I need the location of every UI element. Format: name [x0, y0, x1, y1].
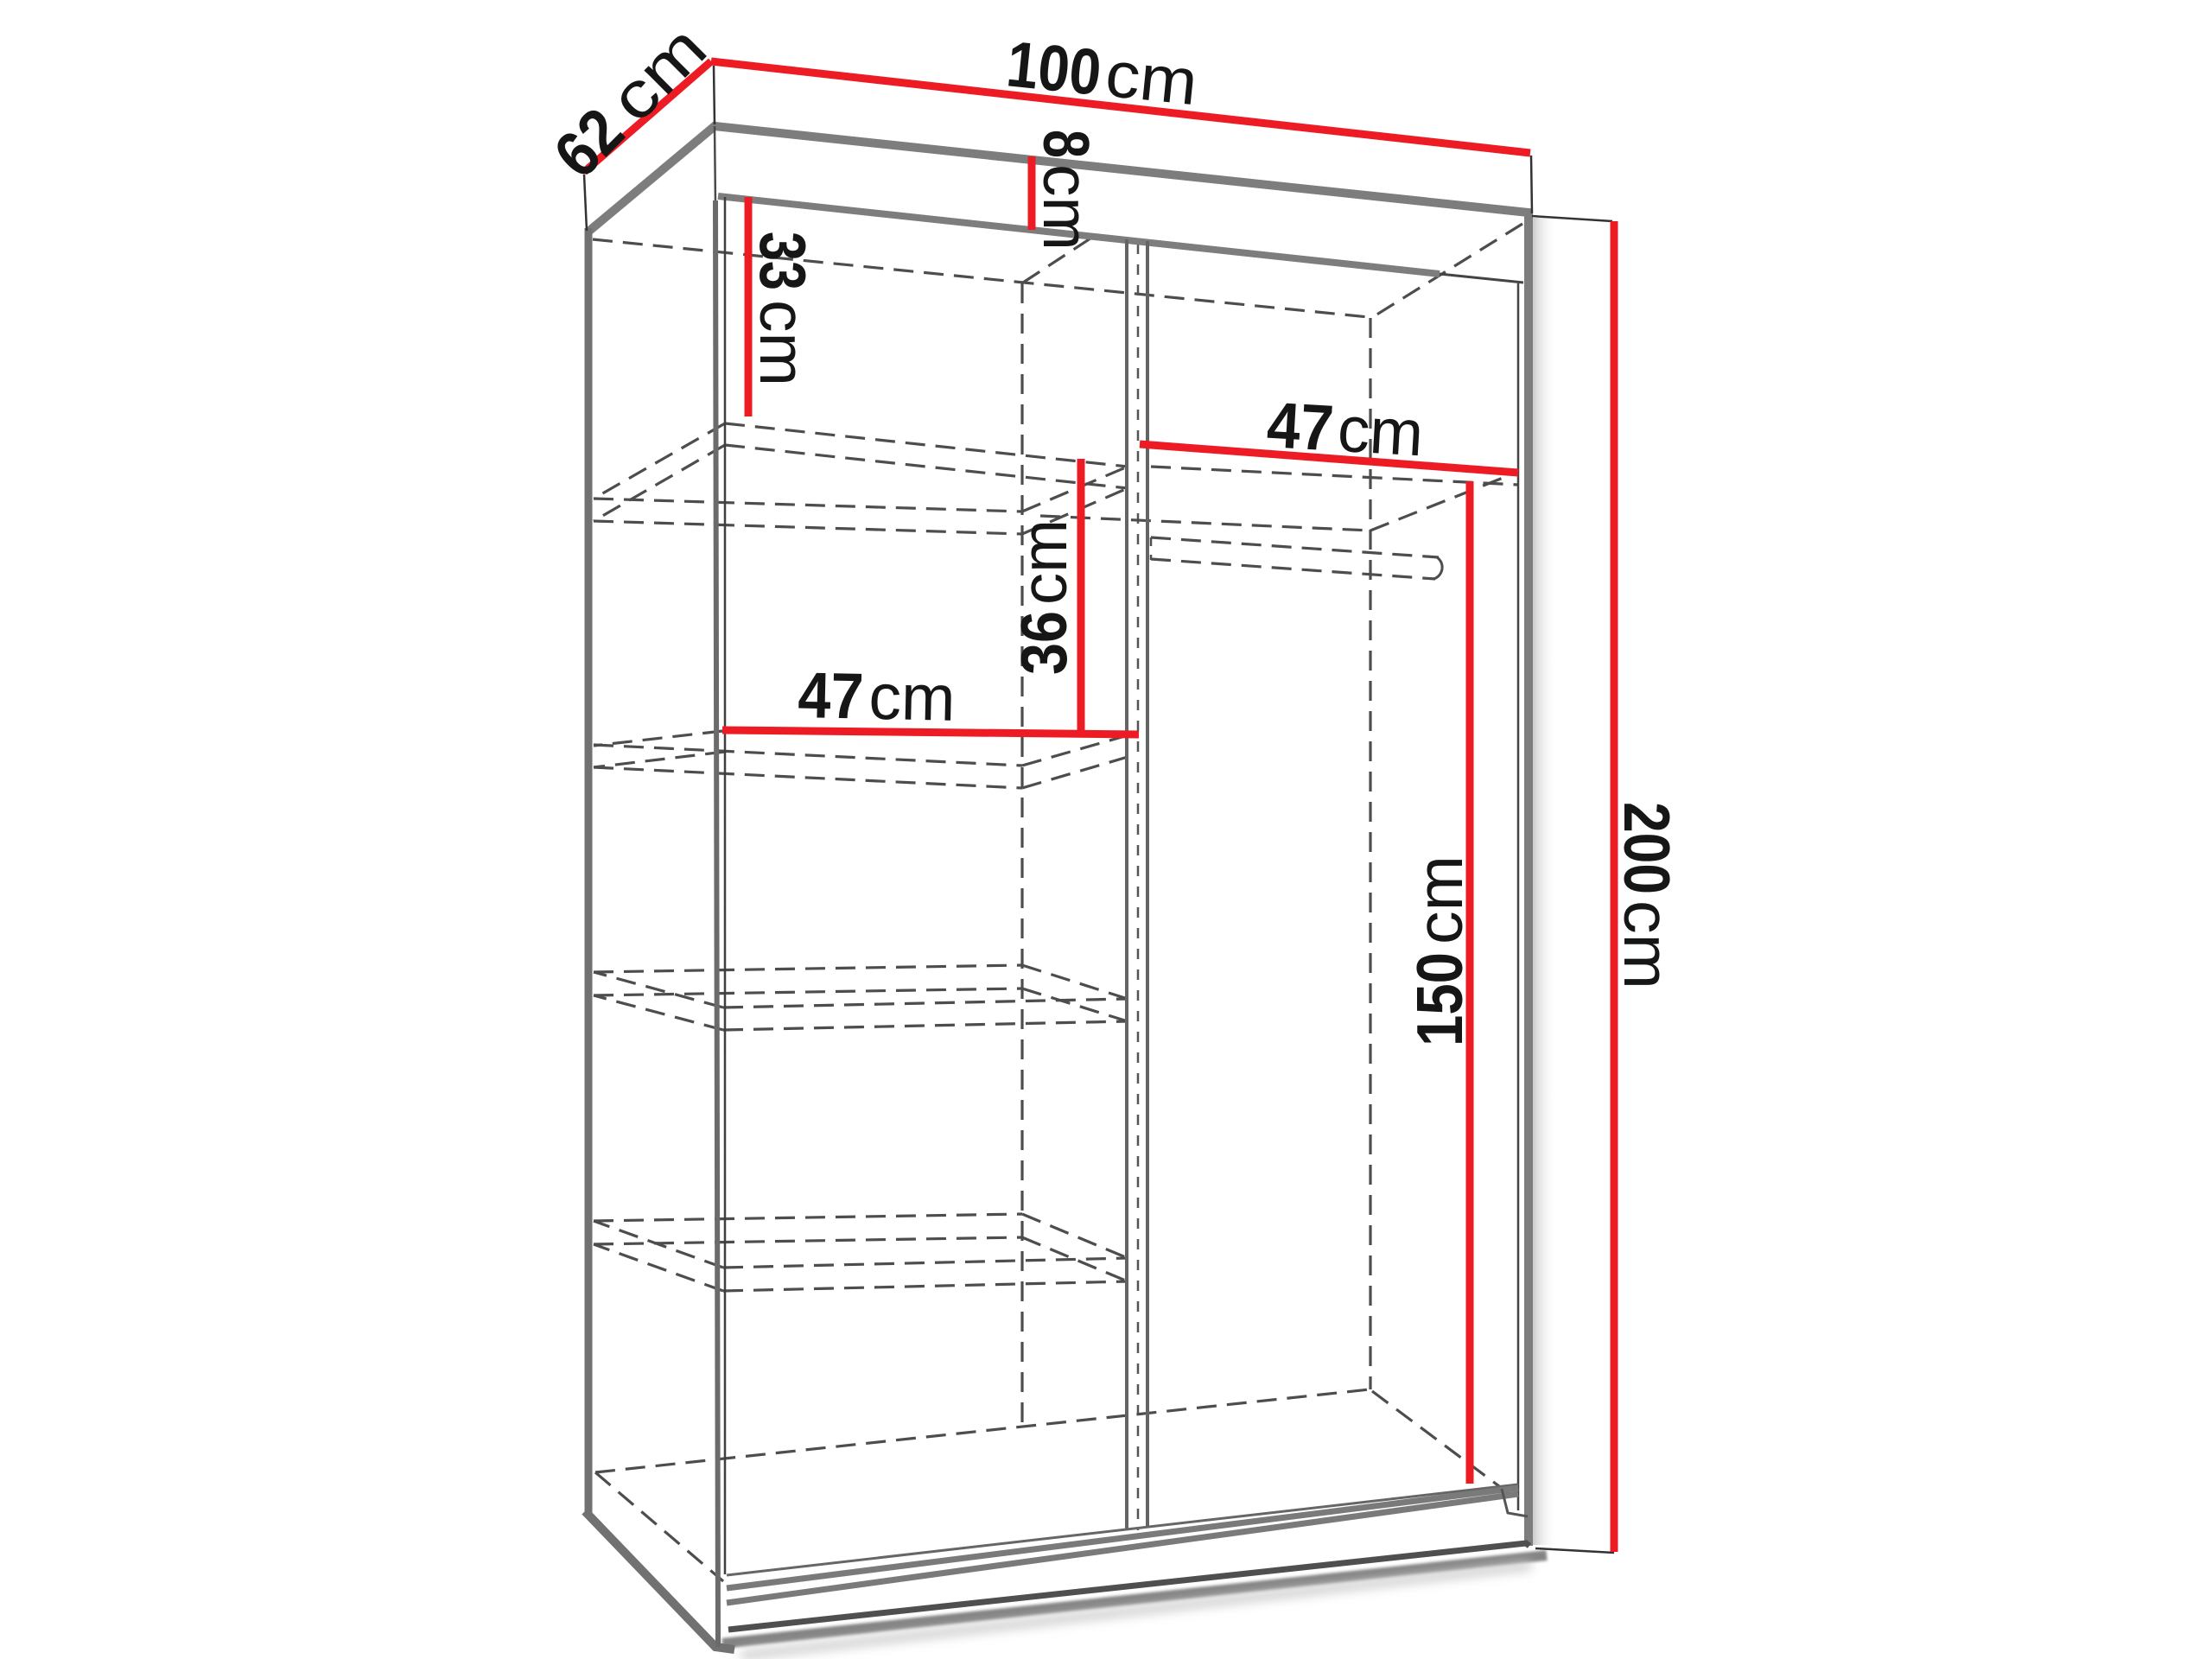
svg-text:150cm: 150cm: [1403, 855, 1476, 1046]
svg-text:100cm: 100cm: [1003, 27, 1200, 118]
svg-text:8cm: 8cm: [1030, 130, 1103, 251]
svg-text:36cm: 36cm: [1007, 519, 1080, 675]
svg-text:33cm: 33cm: [747, 232, 819, 386]
svg-text:47cm: 47cm: [1265, 388, 1426, 469]
svg-text:62cm: 62cm: [540, 11, 721, 192]
svg-text:47cm: 47cm: [798, 658, 957, 734]
svg-text:200cm: 200cm: [1611, 802, 1683, 989]
